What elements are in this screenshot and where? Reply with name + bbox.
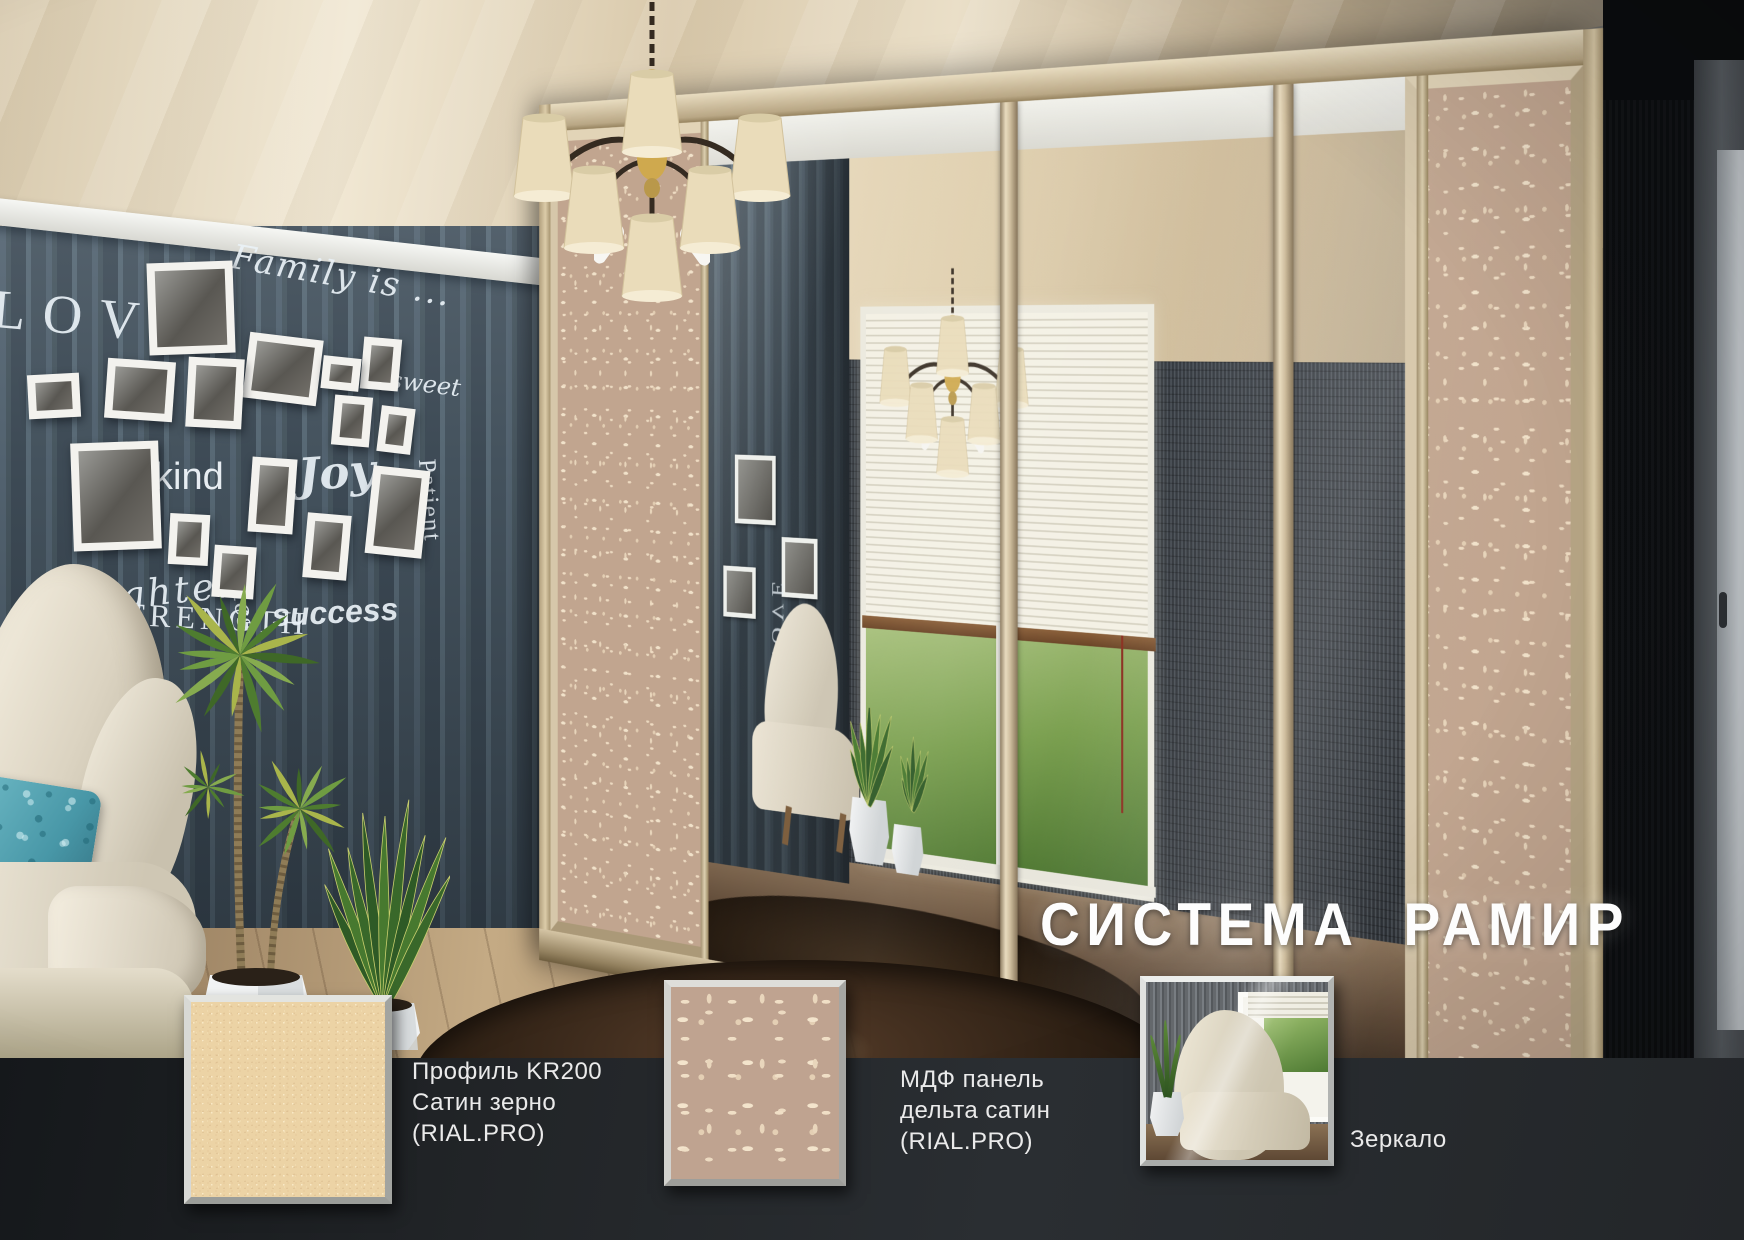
legend-line: дельта сатин xyxy=(900,1095,1050,1126)
picture-frame xyxy=(331,394,373,447)
legend-line: Профиль KR200 xyxy=(412,1056,602,1087)
picture-frame xyxy=(242,332,323,407)
satin-grain-texture xyxy=(191,1002,385,1197)
scene: LOVE Family is ... sweet special kind Jo… xyxy=(0,0,1744,1240)
mdf-panel-right xyxy=(1405,65,1583,1119)
picture-frame xyxy=(320,355,361,392)
door-handle xyxy=(1719,592,1727,628)
delta-satin-texture xyxy=(671,987,839,1179)
page-title: СИСТЕМА РАМИР xyxy=(1040,890,1630,959)
swatch-delta-satin xyxy=(664,980,846,1186)
legend-line: (RIAL.PRO) xyxy=(412,1118,602,1149)
picture-frame xyxy=(360,336,402,391)
swatch-satin-grain xyxy=(184,995,392,1204)
picture-frame xyxy=(185,357,245,430)
legend-line: Зеркало xyxy=(1350,1124,1447,1155)
mirror-thumb-glare xyxy=(1146,982,1328,1160)
legend-line: МДФ панель xyxy=(900,1064,1050,1095)
picture-frame xyxy=(146,261,235,356)
legend-label-mdf: МДФ панель дельта сатин (RIAL.PRO) xyxy=(900,1064,1050,1157)
legend-label-profile: Профиль KR200 Сатин зерно (RIAL.PRO) xyxy=(412,1056,602,1149)
door-divider-profile xyxy=(1000,101,1017,1015)
picture-frame xyxy=(247,457,297,535)
legend-line: Сатин зерно xyxy=(412,1087,602,1118)
wardrobe-right-frame xyxy=(1583,28,1603,1165)
door xyxy=(1717,150,1744,1030)
chandelier xyxy=(452,0,852,330)
picture-frame xyxy=(70,440,162,551)
swatch-mirror xyxy=(1140,976,1334,1166)
picture-frame xyxy=(27,373,81,420)
plants xyxy=(150,545,450,1050)
legend-line: (RIAL.PRO) xyxy=(900,1126,1050,1157)
legend-label-mirror: Зеркало xyxy=(1350,1124,1447,1155)
picture-frame xyxy=(104,358,176,423)
picture-frame xyxy=(376,405,415,455)
